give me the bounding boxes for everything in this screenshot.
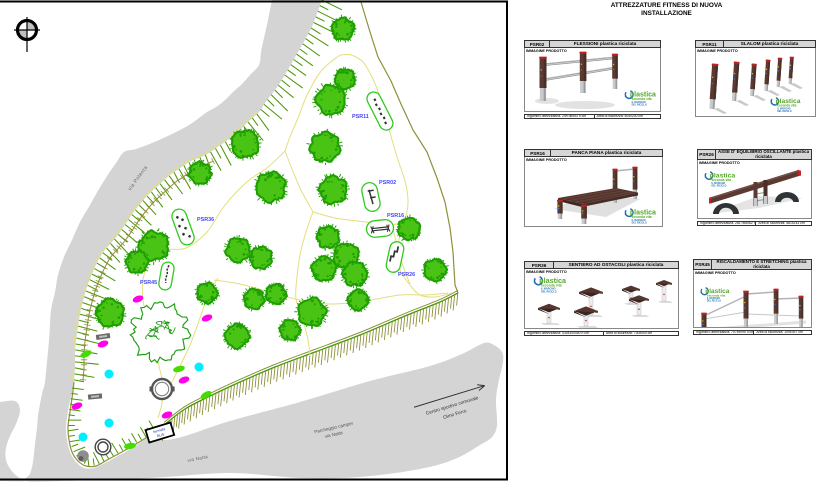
svg-text:PSR45: PSR45 [140, 280, 157, 286]
svg-text:IL MARCHIO: IL MARCHIO [777, 108, 791, 111]
svg-text:DEL RICICLO: DEL RICICLO [632, 222, 647, 225]
svg-text:DEL RICICLO: DEL RICICLO [632, 104, 647, 107]
svg-text:PSR36: PSR36 [197, 217, 214, 223]
svg-text:DEL RICICLO: DEL RICICLO [707, 300, 721, 302]
svg-text:DEL RICICLO: DEL RICICLO [777, 111, 792, 113]
svg-text:seconda vita: seconda vita [711, 178, 731, 182]
svg-text:DEL RICICLO: DEL RICICLO [541, 290, 557, 293]
svg-text:DEL RICICLO: DEL RICICLO [711, 185, 726, 187]
svg-text:PSR26: PSR26 [398, 272, 415, 278]
svg-text:IL MARCHIO: IL MARCHIO [711, 182, 725, 185]
svg-text:PSR16: PSR16 [387, 213, 404, 219]
svg-text:seconda vita: seconda vita [777, 104, 796, 108]
svg-text:PSR11: PSR11 [352, 114, 369, 120]
svg-text:seconda vita: seconda vita [707, 293, 726, 297]
svg-text:PSR02: PSR02 [379, 180, 396, 186]
